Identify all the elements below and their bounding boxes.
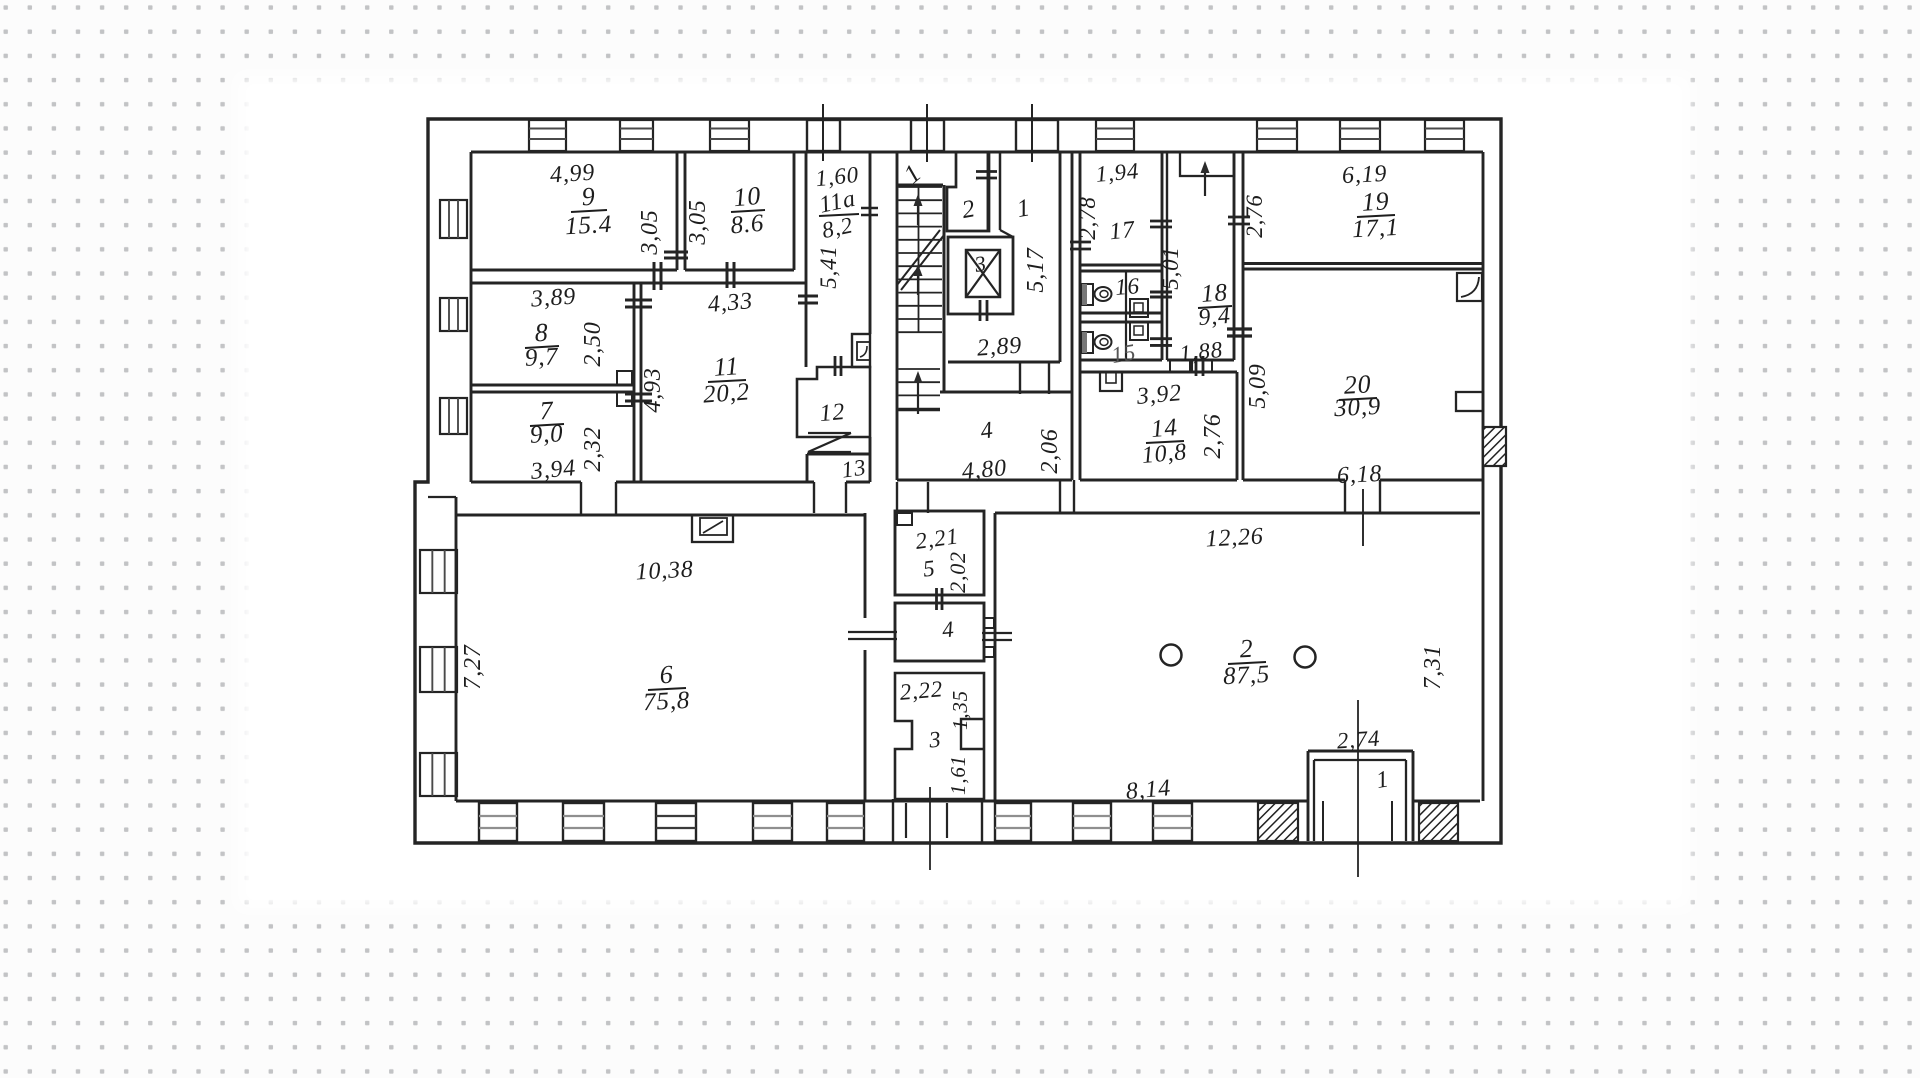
- svg-text:5: 5: [922, 555, 937, 581]
- svg-text:12,26: 12,26: [1205, 524, 1264, 553]
- svg-text:2,02: 2,02: [945, 551, 970, 593]
- svg-text:9,0: 9,0: [529, 420, 564, 449]
- svg-text:7,31: 7,31: [1420, 644, 1446, 689]
- svg-text:9,7: 9,7: [524, 343, 560, 372]
- svg-text:4,33: 4,33: [707, 288, 754, 318]
- svg-text:19: 19: [1361, 186, 1390, 216]
- svg-text:2,89: 2,89: [976, 332, 1023, 361]
- svg-text:20,2: 20,2: [702, 378, 751, 408]
- svg-text:2,76: 2,76: [1242, 194, 1267, 237]
- svg-text:1,60: 1,60: [814, 162, 860, 191]
- svg-text:10,8: 10,8: [1141, 439, 1188, 469]
- svg-text:13: 13: [840, 454, 868, 482]
- svg-text:11: 11: [713, 351, 741, 382]
- svg-text:9: 9: [581, 182, 596, 212]
- svg-text:9,4: 9,4: [1197, 303, 1231, 331]
- svg-text:3,05: 3,05: [637, 209, 663, 255]
- svg-text:2,32: 2,32: [580, 426, 606, 471]
- svg-text:3: 3: [927, 726, 943, 752]
- svg-text:2,78: 2,78: [1075, 196, 1100, 239]
- svg-text:2,74: 2,74: [1336, 726, 1381, 754]
- svg-text:2,50: 2,50: [580, 321, 606, 366]
- svg-text:3,94: 3,94: [529, 455, 577, 485]
- svg-text:7,27: 7,27: [460, 644, 486, 689]
- svg-text:75,8: 75,8: [642, 687, 690, 716]
- svg-text:2,76: 2,76: [1200, 413, 1226, 458]
- svg-text:14: 14: [1150, 414, 1179, 443]
- svg-text:1,61: 1,61: [946, 755, 970, 795]
- svg-text:1,94: 1,94: [1095, 158, 1140, 187]
- svg-text:2: 2: [1239, 634, 1254, 664]
- svg-text:30,9: 30,9: [1332, 393, 1381, 422]
- svg-text:3,05: 3,05: [685, 199, 711, 245]
- svg-text:6: 6: [659, 660, 674, 690]
- svg-text:2,06: 2,06: [1037, 428, 1063, 473]
- svg-text:16: 16: [1114, 273, 1140, 300]
- svg-text:2,22: 2,22: [899, 676, 944, 705]
- svg-text:17: 17: [1108, 217, 1136, 246]
- svg-text:15.4: 15.4: [564, 211, 612, 240]
- svg-text:5,01: 5,01: [1158, 246, 1183, 289]
- svg-text:1,35: 1,35: [948, 690, 972, 730]
- svg-text:5,09: 5,09: [1245, 363, 1271, 408]
- svg-text:87,5: 87,5: [1222, 661, 1270, 690]
- svg-text:10: 10: [732, 181, 762, 212]
- svg-text:5,41: 5,41: [816, 245, 841, 288]
- svg-text:1,88: 1,88: [1178, 337, 1224, 366]
- svg-text:8.6: 8.6: [729, 210, 765, 240]
- svg-text:4,93: 4,93: [640, 367, 666, 412]
- svg-text:3,89: 3,89: [529, 283, 577, 312]
- svg-text:5,17: 5,17: [1023, 247, 1049, 292]
- svg-text:8,14: 8,14: [1125, 775, 1172, 805]
- svg-text:6,18: 6,18: [1336, 461, 1383, 489]
- svg-text:3,92: 3,92: [1135, 380, 1183, 410]
- svg-text:10,38: 10,38: [635, 557, 694, 586]
- svg-text:4: 4: [941, 616, 956, 642]
- svg-text:6,19: 6,19: [1341, 161, 1388, 189]
- svg-text:4,80: 4,80: [961, 455, 1008, 485]
- svg-text:15: 15: [1109, 339, 1138, 368]
- svg-text:12: 12: [819, 399, 847, 427]
- svg-text:17,1: 17,1: [1351, 214, 1399, 243]
